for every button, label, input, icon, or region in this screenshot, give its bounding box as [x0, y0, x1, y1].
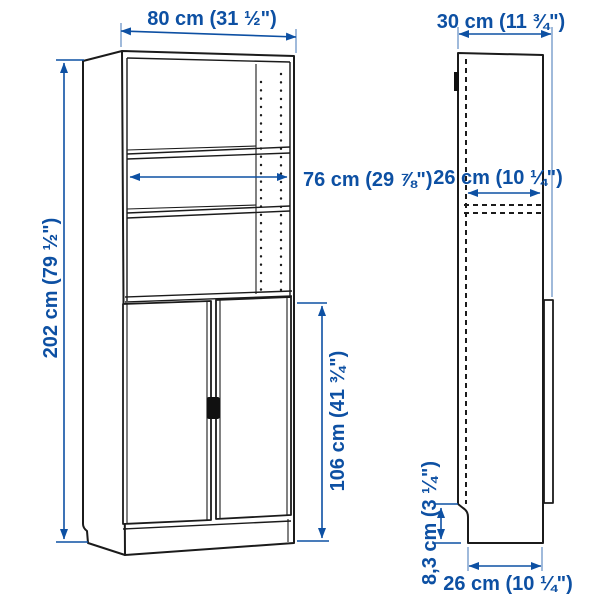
- dimension-door-height: 106 cm (41 ¾"): [297, 303, 349, 541]
- shelf-middle: [127, 205, 290, 218]
- wall-anchor-fitting: [454, 72, 459, 91]
- inner-width-label: 76 cm (29 ⅞"): [303, 169, 433, 191]
- width-label: 80 cm (31 ½"): [147, 8, 277, 30]
- left-door: [123, 301, 211, 524]
- inner-depth-label: 26 cm (10 ¼"): [433, 167, 563, 189]
- front-left-side-panel: [83, 51, 125, 555]
- shelf-upper: [127, 146, 290, 159]
- plinth-height-label: 8,3 cm (3 ¼"): [419, 461, 441, 585]
- side-outline: [458, 53, 543, 543]
- dimension-height: 202 cm (79 ½"): [40, 60, 88, 542]
- front-view: [83, 51, 294, 555]
- dimension-width: 80 cm (31 ½"): [121, 8, 296, 53]
- base-depth-label: 26 cm (10 ¼"): [443, 573, 573, 595]
- right-door: [216, 297, 291, 519]
- height-label: 202 cm (79 ½"): [40, 218, 62, 359]
- dimension-diagram: 80 cm (31 ½") 202 cm (79 ½") 76 cm (29 ⅞…: [0, 0, 600, 600]
- side-view: [454, 53, 553, 543]
- depth-label: 30 cm (11 ¾"): [437, 11, 565, 33]
- top-panel-edge: [127, 58, 290, 62]
- dimension-inner-width: 76 cm (29 ⅞"): [130, 169, 433, 191]
- dimension-plinth-height: 8,3 cm (3 ¼"): [419, 461, 461, 585]
- side-door-front: [544, 300, 553, 503]
- door-height-label: 106 cm (41 ¾"): [327, 351, 349, 492]
- dimension-base-depth: 26 cm (10 ¼"): [443, 547, 573, 595]
- door-handle: [207, 397, 221, 419]
